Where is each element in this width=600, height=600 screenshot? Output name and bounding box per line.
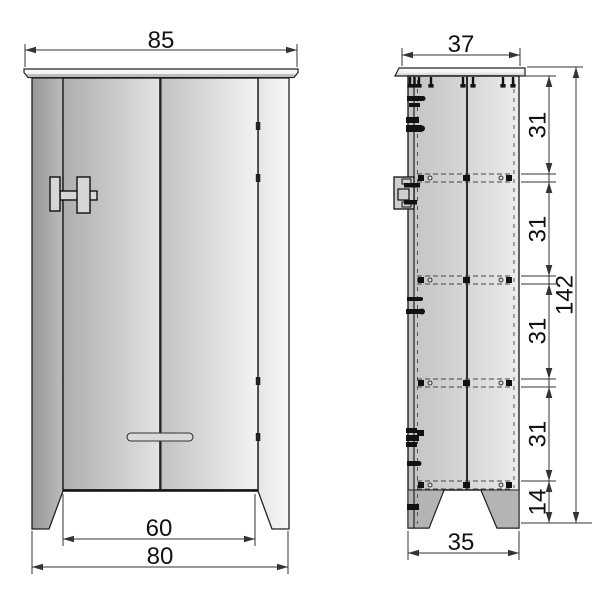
right-door [160, 78, 258, 490]
latch-left-bar [50, 177, 60, 211]
screw-icon [418, 277, 424, 283]
side-top-cap [395, 68, 525, 76]
side-cap-shape [395, 68, 525, 76]
bolt-icon [407, 297, 423, 301]
dimension-base-depth: 35 [408, 529, 519, 560]
bolt-icon [406, 309, 425, 315]
screw-icon [506, 482, 512, 488]
dowel-icon [499, 381, 503, 385]
dim-label-segment-1: 31 [525, 112, 552, 139]
side-back-leg [481, 490, 519, 528]
latch-bolt [404, 183, 420, 188]
screw-icon [463, 175, 470, 181]
dowel-icon [428, 381, 432, 385]
hinge-mark-icon [256, 174, 260, 182]
dim-label-segment-4: 31 [525, 421, 552, 448]
screw-icon [506, 277, 512, 283]
front-view: 85 60 [24, 27, 298, 574]
dim-label-top-width: 85 [148, 27, 175, 54]
screw-icon [418, 482, 424, 488]
screw-icon [506, 380, 512, 386]
side-panel [408, 76, 519, 528]
dimension-top-depth: 37 [402, 31, 520, 66]
top-cap-shape [24, 69, 298, 78]
technical-drawing-canvas: 85 60 [0, 0, 600, 600]
bolt-icon [407, 461, 422, 466]
door-slot-handle [127, 433, 193, 441]
screw-icon [463, 380, 470, 386]
dowel-icon [499, 483, 503, 487]
dim-label-leg-height: 14 [525, 489, 552, 516]
dim-label-total-height: 142 [552, 275, 579, 315]
cabinet-top-cap [24, 69, 298, 78]
dimension-top-width: 85 [25, 27, 297, 67]
front-right-stile-and-leg [258, 78, 289, 529]
left-door [63, 78, 160, 490]
dim-label-top-depth: 37 [448, 31, 475, 58]
dim-label-base-width: 80 [147, 543, 174, 570]
screw-icon [463, 277, 470, 283]
dowel-icon [428, 278, 432, 282]
dim-label-opening-width: 60 [146, 515, 173, 542]
latch-right-bar [77, 177, 90, 213]
latch-bolt [404, 200, 417, 205]
front-left-stile-and-leg [32, 78, 63, 529]
dimension-opening-width: 60 [63, 494, 255, 546]
dowel-icon [428, 176, 432, 180]
dowel-icon [428, 483, 432, 487]
dim-label-segment-3: 31 [525, 318, 552, 345]
dim-label-segment-2: 31 [525, 216, 552, 243]
dowel-icon [499, 278, 503, 282]
screw-icon [463, 482, 470, 488]
hinge-mark-icon [256, 433, 260, 441]
bolt-icon [407, 504, 419, 510]
dowel-icon [499, 176, 503, 180]
hinge-mark-icon [256, 377, 260, 385]
screw-icon [418, 380, 424, 386]
drawing-page: 85 60 [0, 0, 600, 600]
side-view: 37 [394, 31, 592, 560]
hinge-mark-icon [256, 122, 260, 130]
screw-icon [506, 175, 512, 181]
dim-label-base-depth: 35 [448, 529, 475, 556]
screw-icon [418, 175, 424, 181]
